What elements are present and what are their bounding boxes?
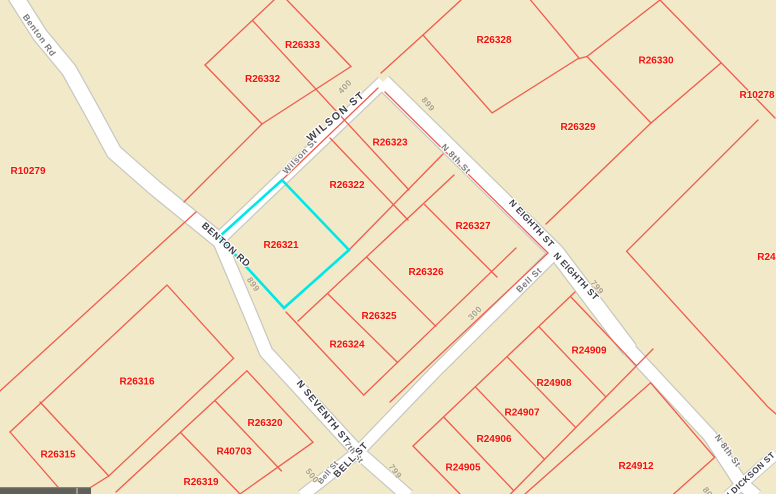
svg-text:R10278: R10278 bbox=[739, 90, 774, 101]
svg-text:R24906: R24906 bbox=[476, 434, 511, 445]
svg-text:R26327: R26327 bbox=[455, 221, 490, 232]
svg-text:R26326: R26326 bbox=[408, 267, 443, 278]
svg-text:R40703: R40703 bbox=[216, 447, 251, 458]
svg-text:R26328: R26328 bbox=[476, 35, 511, 46]
svg-text:R24912: R24912 bbox=[618, 461, 653, 472]
svg-text:R26316: R26316 bbox=[119, 377, 154, 388]
svg-text:R26324: R26324 bbox=[329, 340, 364, 351]
svg-text:R26325: R26325 bbox=[361, 311, 396, 322]
svg-text:R26333: R26333 bbox=[285, 40, 320, 51]
svg-text:R10279: R10279 bbox=[10, 166, 45, 177]
svg-text:R24909: R24909 bbox=[571, 346, 606, 357]
svg-text:R26320: R26320 bbox=[247, 418, 282, 429]
svg-text:R26323: R26323 bbox=[372, 138, 407, 149]
svg-text:R26321: R26321 bbox=[263, 240, 298, 251]
svg-text:R26315: R26315 bbox=[40, 450, 75, 461]
svg-text:R26319: R26319 bbox=[183, 477, 218, 488]
svg-text:R24907: R24907 bbox=[504, 408, 539, 419]
svg-text:R24908: R24908 bbox=[536, 378, 571, 389]
svg-text:R26329: R26329 bbox=[560, 122, 595, 133]
svg-text:R26330: R26330 bbox=[638, 56, 673, 67]
svg-text:R26322: R26322 bbox=[329, 180, 364, 191]
svg-text:R2491: R2491 bbox=[757, 252, 776, 263]
svg-text:R26332: R26332 bbox=[245, 74, 280, 85]
svg-text:R24905: R24905 bbox=[445, 463, 480, 474]
